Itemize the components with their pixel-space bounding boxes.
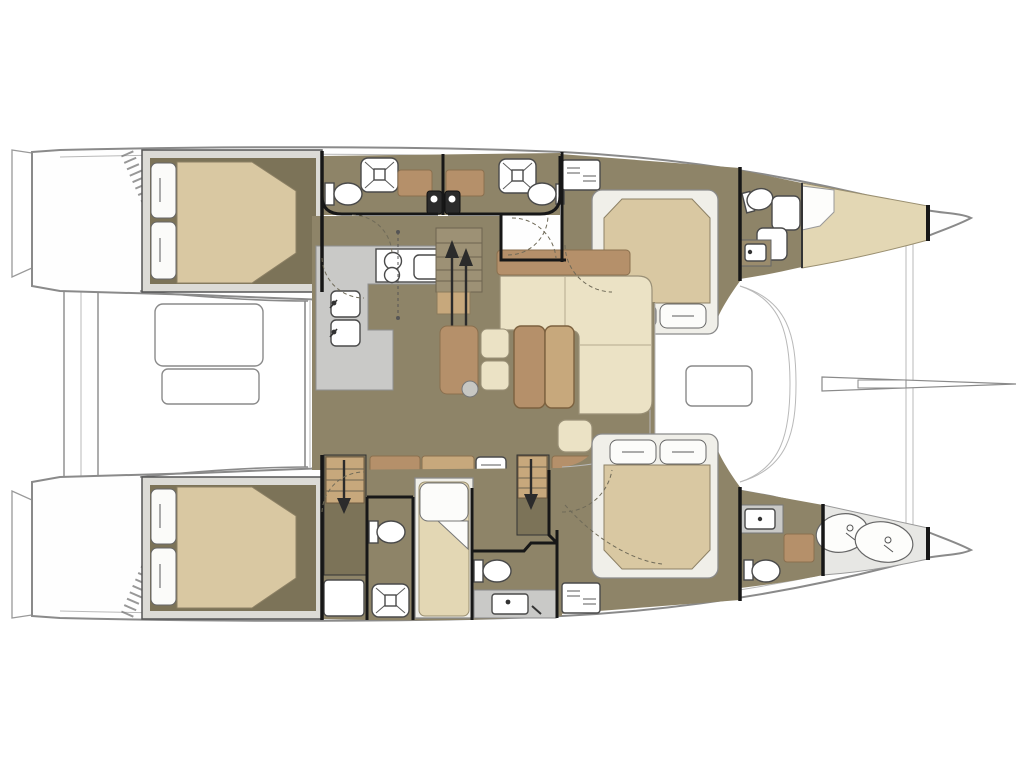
floor-plan-page <box>0 0 1024 768</box>
starboard-forward-bed-mattress <box>604 465 710 569</box>
dining-table-leaf <box>514 326 545 408</box>
ottoman <box>558 420 592 452</box>
pillow <box>151 489 176 544</box>
louver-icon <box>562 583 600 613</box>
stair-landing <box>324 580 364 616</box>
port-aft-bed-mattress <box>177 162 296 283</box>
forward-cockpit-seat <box>686 366 752 406</box>
shower-drain <box>385 595 396 606</box>
bowsprit <box>822 377 1016 391</box>
cockpit-table <box>162 369 259 404</box>
floor-plan-canvas <box>0 0 1024 768</box>
toilet-bowl <box>377 521 405 543</box>
companionway-steps <box>436 228 482 292</box>
starboard-hull-interior <box>142 434 928 620</box>
starboard-transom-platform <box>12 491 32 618</box>
bowsprit-fitting <box>858 380 906 388</box>
toilet-bowl <box>528 183 556 205</box>
faucet-dot <box>748 250 752 254</box>
partition-post <box>396 316 400 320</box>
toilet-bowl <box>752 560 780 582</box>
dining-stool <box>481 361 509 390</box>
faucet-dot <box>758 517 762 521</box>
head-cabinet <box>784 534 814 562</box>
aft-cockpit <box>140 291 310 477</box>
stair-steps <box>518 456 547 498</box>
port-transom-platform <box>12 150 32 277</box>
dining-table-leaf <box>545 326 574 408</box>
stove-burner <box>385 268 400 283</box>
shower-drain <box>512 170 523 181</box>
faucet-dot <box>506 600 511 605</box>
vanity-sink <box>492 594 528 614</box>
sink-basin-dot <box>449 196 456 203</box>
shower-drain <box>374 169 385 180</box>
pillow <box>420 483 468 521</box>
partition-post <box>396 230 400 234</box>
vanity-sink <box>427 191 442 214</box>
pillow <box>151 222 176 279</box>
shower-seat <box>772 196 800 230</box>
louver-icon <box>562 160 600 190</box>
sink-basin-dot <box>431 196 438 203</box>
vanity-sink <box>445 191 460 214</box>
toilet-tank <box>474 560 483 582</box>
toilet-bowl <box>483 560 511 582</box>
toilet-bowl <box>334 183 362 205</box>
swivel-stool <box>462 381 478 397</box>
cockpit-bench <box>155 304 263 366</box>
toilet-tank <box>325 183 334 205</box>
dining-stool <box>481 329 509 358</box>
pillow <box>151 163 176 218</box>
starboard-aft-bed-mattress <box>177 487 296 608</box>
pillow <box>151 548 176 605</box>
